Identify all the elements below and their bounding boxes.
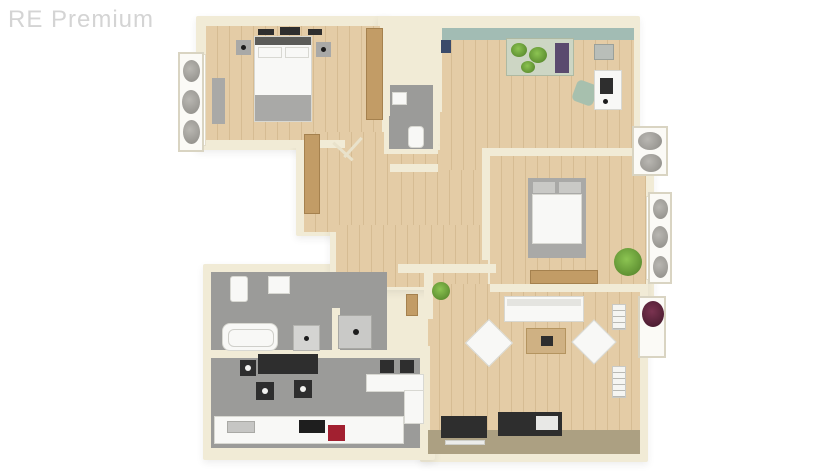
dining-chair (240, 360, 256, 376)
plant-icon (183, 120, 200, 144)
flower-box-left (178, 52, 204, 152)
wc-washbasin (392, 92, 407, 105)
bar-stool (400, 360, 414, 373)
plant-icon (640, 154, 662, 172)
wall-office-bottom (390, 164, 438, 172)
flower-box-right (648, 192, 672, 284)
plant-icon (653, 256, 668, 278)
bench (530, 270, 598, 284)
plant-table (506, 38, 574, 76)
pillow (285, 47, 309, 58)
tv-sideboard-shelf (445, 440, 485, 445)
pillow (258, 47, 282, 58)
table-item (541, 336, 553, 346)
flower-box-top-right (632, 126, 668, 176)
bath-cabinet (268, 276, 290, 294)
wall-corridor-t (398, 264, 496, 273)
dark-red-plant-icon (642, 301, 664, 327)
wc-toilet (408, 126, 424, 148)
wall-bedroom2-top (482, 148, 646, 156)
dining-chair (294, 380, 312, 398)
balcony-planter (638, 296, 666, 358)
media-unit (498, 412, 562, 436)
tall-wardrobe (366, 28, 383, 120)
wall-bedroom1-bottom (203, 140, 345, 148)
bath-toilet (230, 276, 248, 302)
wall-cabinet (594, 44, 614, 60)
bed-blanket (255, 95, 311, 121)
tv-screen (536, 416, 558, 430)
bathtub (222, 323, 278, 351)
blue-item (441, 40, 451, 53)
plant-icon (511, 43, 527, 57)
bedroom2-plant-icon (614, 248, 642, 276)
wall-decor (308, 29, 322, 35)
pillow (533, 182, 555, 193)
wall-bedroom2-bottom (490, 284, 646, 292)
red-appliance (328, 425, 345, 441)
nightstand-right (316, 42, 331, 57)
plant-icon (638, 132, 662, 150)
tv-sideboard (441, 416, 487, 438)
desk-item (603, 99, 608, 104)
plant-icon (529, 47, 547, 63)
hall-console (406, 294, 418, 316)
bar-stool (380, 360, 394, 373)
purple-cabinet (555, 43, 569, 73)
plant-icon (183, 60, 200, 82)
kitchen-counter (214, 416, 404, 444)
pillow (559, 182, 581, 193)
washbasin (293, 325, 320, 351)
hall-plant-icon (432, 282, 450, 300)
double-bed-2 (528, 178, 586, 258)
floor-plan-screenshot: RE Premium (0, 0, 840, 474)
sofa-back (507, 299, 581, 306)
laptop-icon (600, 78, 613, 94)
plant-icon (652, 226, 668, 248)
sofa (504, 296, 584, 322)
bed-duvet (532, 194, 582, 244)
double-bed-1 (254, 36, 312, 122)
kitchen-island-side (404, 390, 424, 424)
watermark-text: RE Premium (8, 6, 154, 34)
plant-icon (653, 199, 668, 219)
shower-drain (353, 329, 359, 335)
kitchen-sink (227, 421, 255, 433)
headboard (255, 37, 311, 45)
bathtub-inner (228, 329, 274, 347)
wall-decor (258, 29, 274, 35)
nightstand-left (236, 40, 251, 55)
cooktop (299, 420, 325, 433)
shower (338, 315, 372, 349)
dresser (212, 78, 225, 124)
wall-bedroom2-left (482, 156, 490, 260)
desk (594, 70, 622, 110)
wall-decor (280, 27, 300, 35)
dining-chair (256, 382, 274, 400)
plant-icon (182, 90, 200, 114)
hall-wardrobe (304, 134, 320, 214)
plant-icon (521, 61, 535, 73)
coffee-table (526, 328, 566, 354)
wall-shelf-upper (612, 304, 626, 330)
wall-shelf-lower (612, 366, 626, 398)
dining-table (258, 354, 318, 374)
wall-corridor-stub (424, 273, 433, 319)
wall-office-left (434, 24, 442, 112)
